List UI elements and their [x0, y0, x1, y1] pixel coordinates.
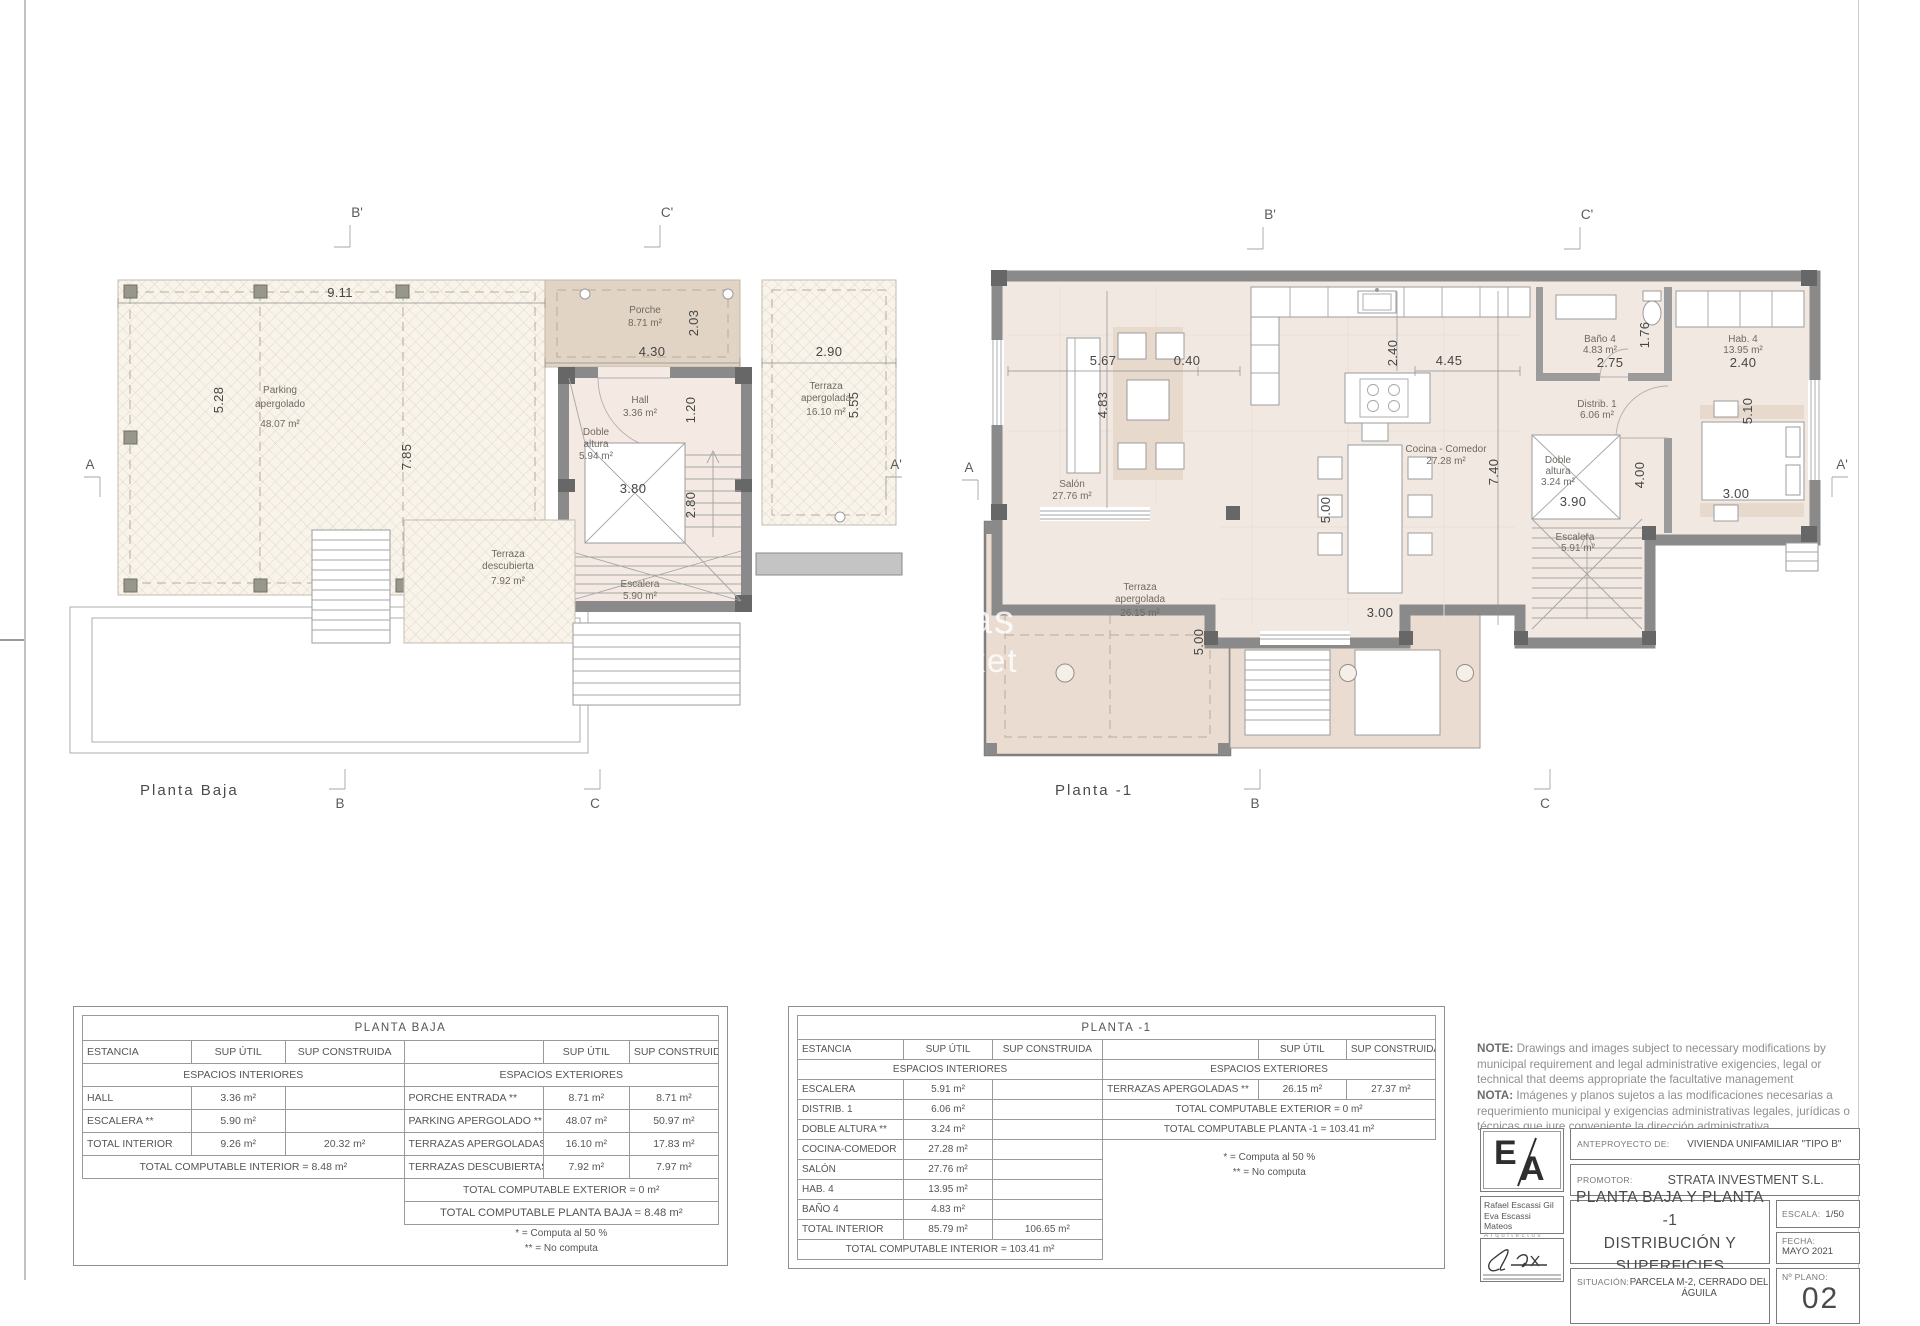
escala-box: ESCALA: 1/50 [1776, 1200, 1860, 1228]
total-exterior: TOTAL COMPUTABLE EXTERIOR = 0 m² [404, 1179, 718, 1202]
dim-label: 5.00 [1191, 629, 1206, 656]
legend-line2: ** = No computa [1107, 1165, 1431, 1180]
table-legend: * = Computa al 50 % ** = No computa [404, 1225, 718, 1258]
room-area-terraza-ap: 16.10 m² [806, 407, 846, 418]
table-row: COCINA-COMEDOR 27.28 m² * = Computa al 5… [798, 1140, 1436, 1160]
cell-util: 85.79 m² [904, 1220, 992, 1240]
fecha-value: MAYO 2021 [1782, 1246, 1859, 1257]
escala-value: 1/50 [1825, 1209, 1844, 1220]
dim-label: 3.90 [1560, 494, 1587, 509]
floorplan-planta-m1: 5.67 0.40 4.83 Salón 27.76 m² 2.40 4.45 … [960, 195, 1910, 817]
table-row: TOTAL COMPUTABLE INTERIOR = 8.48 m² TERR… [83, 1156, 719, 1179]
room-label-cocina: Cocina - Comedor [1405, 444, 1487, 455]
garden-stairs [312, 530, 390, 643]
dim-label: 7.85 [399, 444, 414, 471]
table-title: PLANTA BAJA [83, 1016, 719, 1041]
dim-label: 7.40 [1486, 459, 1501, 486]
table-row: DOBLE ALTURA ** 3.24 m² TOTAL COMPUTABLE… [798, 1120, 1436, 1140]
table-row: TOTAL COMPUTABLE PLANTA BAJA = 8.48 m² [83, 1202, 719, 1225]
island [1345, 373, 1430, 423]
room-label-parking: Parking [263, 385, 297, 396]
room-area-distrib: 6.06 m² [1580, 410, 1615, 421]
wing-steps [1786, 543, 1818, 571]
cell-cons [992, 1200, 1103, 1220]
cell-util: 5.91 m² [904, 1080, 992, 1100]
dim-label: 4.00 [1632, 462, 1647, 489]
dim-label: 5.67 [1090, 353, 1117, 368]
room-area-escalera-m1: 5.91 m² [1561, 543, 1596, 554]
cell-cons: 27.37 m² [1346, 1080, 1435, 1100]
section-header: ESPACIOS EXTERIORES [404, 1064, 718, 1087]
section-marker-a: A [85, 457, 94, 472]
signature-box [1480, 1238, 1564, 1282]
plan-title-baja: Planta Baja [140, 782, 239, 799]
situacion-label: SITUACIÓN: [1571, 1277, 1629, 1287]
col-header: ESTANCIA [798, 1040, 904, 1060]
total-exterior: TOTAL COMPUTABLE EXTERIOR = 0 m² [1103, 1100, 1436, 1120]
col-header: SUP CONSTRUIDA [1346, 1040, 1435, 1060]
dim-label: 3.00 [1367, 605, 1394, 620]
cell-name: PORCHE ENTRADA ** [404, 1087, 543, 1110]
section-marker-c-m1: C [1540, 796, 1550, 811]
col-header: SUP CONSTRUIDA [629, 1041, 718, 1064]
situacion-box: SITUACIÓN: PARCELA M-2, CERRADO DEL ÁGUI… [1570, 1268, 1770, 1324]
cell-util: 27.28 m² [904, 1140, 992, 1160]
section-marker-a2: A' [890, 457, 902, 472]
section-marker-b-m1: B [1250, 796, 1259, 811]
dim-label: 2.40 [1385, 340, 1400, 367]
col-header: SUP ÚTIL [191, 1041, 285, 1064]
room-area-parking: 48.07 m² [260, 419, 300, 430]
cell-name: BAÑO 4 [798, 1200, 904, 1220]
room-label-distrib: Distrib. 1 [1577, 399, 1617, 410]
table-row: HALL 3.36 m² PORCHE ENTRADA ** 8.71 m² 8… [83, 1087, 719, 1110]
note-en: NOTE: Drawings and images subject to nec… [1477, 1041, 1863, 1088]
dim-label: 2.75 [1597, 355, 1624, 370]
cell-cons [992, 1140, 1103, 1160]
nplano-box: Nº PLANO: 02 [1776, 1268, 1860, 1324]
cell-name: DOBLE ALTURA ** [798, 1120, 904, 1140]
cell-util: 8.71 m² [543, 1087, 629, 1110]
drawing-title-box: PLANTA BAJA Y PLANTA -1 DISTRIBUCIÓN Y S… [1570, 1200, 1770, 1264]
cell-name: COCINA-COMEDOR [798, 1140, 904, 1160]
room-label-doble: altura [583, 439, 608, 450]
room-label-parking: apergolado [255, 399, 305, 410]
dim-label: 2.90 [816, 344, 843, 359]
cell-name: SALÓN [798, 1160, 904, 1180]
legend-line1: * = Computa al 50 % [1107, 1150, 1431, 1165]
logo-inner-frame: E A [1483, 1131, 1561, 1189]
cell-name: TOTAL INTERIOR [83, 1133, 192, 1156]
nplano-value: 02 [1782, 1282, 1859, 1316]
cell-cons [992, 1120, 1103, 1140]
anteproyecto-box: ANTEPROYECTO DE: VIVIENDA UNIFAMILIAR "T… [1570, 1128, 1860, 1160]
cell-cons [992, 1160, 1103, 1180]
legend-line1: * = Computa al 50 % [408, 1226, 714, 1241]
dim-label: 2.03 [686, 310, 701, 337]
hall-door-opening [598, 367, 670, 378]
cell-util: 5.90 m² [191, 1110, 285, 1133]
cell-name: PARKING APERGOLADO ** [404, 1110, 543, 1133]
cell-cons [285, 1110, 404, 1133]
escala-label: ESCALA: [1782, 1209, 1820, 1219]
total-interior: TOTAL COMPUTABLE INTERIOR = 8.48 m² [83, 1156, 405, 1179]
cell-util: 27.76 m² [904, 1160, 992, 1180]
room-label-escalera: Escalera [621, 579, 660, 590]
cell-util: 26.15 m² [1258, 1080, 1346, 1100]
col-header-blank [404, 1041, 543, 1064]
legend-line2: ** = No computa [408, 1241, 714, 1256]
logo-slash-icon [1484, 1132, 1564, 1190]
table-row: * = Computa al 50 % ** = No computa [83, 1225, 719, 1258]
architect-name-1: Rafael Escassi Gil [1484, 1200, 1561, 1211]
room-label-terraza-ap: apergolada [801, 393, 851, 404]
plan-sheet: { "watermark": {"line1": "verseas", "lin… [0, 0, 1920, 1280]
dim-label: 4.83 [1095, 392, 1110, 419]
dim-label: 5.10 [1740, 398, 1755, 425]
room-label-hab: Hab. 4 [1728, 334, 1758, 345]
blank-cell [83, 1202, 405, 1225]
cell-util: 7.92 m² [543, 1156, 629, 1179]
col-header: ESTANCIA [83, 1041, 192, 1064]
cell-name: TERRAZAS APERGOLADAS ** [404, 1133, 543, 1156]
total-interior: TOTAL COMPUTABLE INTERIOR = 103.41 m² [798, 1240, 1103, 1260]
room-area-terraza: 26.15 m² [1120, 608, 1160, 619]
cell-cons: 20.32 m² [285, 1133, 404, 1156]
col-header-blank [1103, 1040, 1259, 1060]
cell-name: HAB. 4 [798, 1180, 904, 1200]
blank-cell [83, 1225, 405, 1258]
dim-label: 1.20 [683, 397, 698, 424]
room-label-doble-m1: altura [1545, 466, 1570, 477]
stair-hall-block [558, 367, 752, 612]
promotor-label: PROMOTOR: [1571, 1175, 1633, 1185]
blank-cell [83, 1179, 405, 1202]
sheet-fold-tick [0, 639, 24, 641]
cell-cons: 106.65 m² [992, 1220, 1103, 1240]
table-row: ESCALERA 5.91 m² TERRAZAS APERGOLADAS **… [798, 1080, 1436, 1100]
anteproyecto-value: VIVIENDA UNIFAMILIAR "TIPO B" [1670, 1139, 1859, 1150]
table-row: TOTAL COMPUTABLE EXTERIOR = 0 m² [83, 1179, 719, 1202]
cell-name: DISTRIB. 1 [798, 1100, 904, 1120]
room-label-hall: Hall [631, 395, 648, 406]
cell-cons [992, 1080, 1103, 1100]
room-area-hall: 3.36 m² [623, 408, 658, 419]
dim-label: 9.11 [327, 285, 353, 300]
cell-util: 3.36 m² [191, 1087, 285, 1110]
cell-name: ESCALERA ** [83, 1110, 192, 1133]
dim-label: 5.00 [1318, 497, 1333, 524]
dim-label: 4.30 [639, 344, 666, 359]
cell-cons: 17.83 m² [629, 1133, 718, 1156]
col-header: SUP CONSTRUIDA [285, 1041, 404, 1064]
toilet [1643, 301, 1661, 325]
room-label-terraza: Terraza [1123, 582, 1157, 593]
plan-title-m1: Planta -1 [1055, 782, 1133, 799]
cell-name: TOTAL INTERIOR [798, 1220, 904, 1240]
anteproyecto-label: ANTEPROYECTO DE: [1571, 1139, 1670, 1149]
dim-label: 5.28 [211, 387, 226, 414]
section-marker-c: C [590, 796, 600, 811]
cell-cons: 8.71 m² [629, 1087, 718, 1110]
room-label-terr-desc: Terraza [491, 549, 525, 560]
cell-cons: 7.97 m² [629, 1156, 718, 1179]
cell-util: 13.95 m² [904, 1180, 992, 1200]
note-es-label: NOTA: [1477, 1089, 1513, 1102]
total-planta: TOTAL COMPUTABLE PLANTA BAJA = 8.48 m² [404, 1202, 718, 1225]
section-marker-b2-m1: B' [1264, 207, 1276, 222]
room-area-cocina: 27.28 m² [1426, 456, 1466, 467]
col-header: SUP ÚTIL [904, 1040, 992, 1060]
nplano-label: Nº PLANO: [1782, 1272, 1859, 1282]
table-row: DISTRIB. 1 6.06 m² TOTAL COMPUTABLE EXTE… [798, 1100, 1436, 1120]
cell-cons [285, 1087, 404, 1110]
room-label-terraza: apergolada [1115, 594, 1165, 605]
dim-label: 0.40 [1174, 353, 1201, 368]
room-area-terr-desc: 7.92 m² [491, 576, 526, 587]
room-area-escalera: 5.90 m² [623, 591, 658, 602]
room-area-doble: 5.94 m² [579, 451, 614, 462]
room-label-salon: Salón [1059, 479, 1085, 490]
salon-furniture [1067, 327, 1184, 480]
room-label-doble-m1: Doble [1545, 455, 1572, 466]
room-area-porche: 8.71 m² [628, 318, 663, 329]
total-planta: TOTAL COMPUTABLE PLANTA -1 = 103.41 m² [1103, 1120, 1436, 1140]
room-area-salon: 27.76 m² [1052, 491, 1092, 502]
path-band [756, 553, 902, 575]
blank-cell [1103, 1240, 1436, 1260]
exterior-steps [573, 623, 740, 705]
table-row: TOTAL INTERIOR 9.26 m² 20.32 m² TERRAZAS… [83, 1133, 719, 1156]
cell-util: 4.83 m² [904, 1200, 992, 1220]
col-header: SUP ÚTIL [1258, 1040, 1346, 1060]
terraza-descubierta [404, 520, 575, 643]
dim-label: 2.40 [1730, 355, 1757, 370]
note-en-text: Drawings and images subject to necessary… [1477, 1042, 1826, 1086]
table-row: TOTAL COMPUTABLE INTERIOR = 103.41 m² [798, 1240, 1436, 1260]
dim-label: 3.80 [620, 481, 647, 496]
address-fineprint [1483, 1274, 1561, 1277]
cell-util: 6.06 m² [904, 1100, 992, 1120]
title-block: E A Rafael Escassi Gil Eva Escassi Mateo… [1480, 1126, 1862, 1326]
architects-box: Rafael Escassi Gil Eva Escassi Mateos Ar… [1480, 1196, 1564, 1234]
cell-name: ESCALERA [798, 1080, 904, 1100]
section-marker-c2: C' [661, 205, 673, 220]
col-header: SUP ÚTIL [543, 1041, 629, 1064]
dim-label: 3.00 [1723, 486, 1750, 501]
cell-cons: 50.97 m² [629, 1110, 718, 1133]
section-marker-a2-m1: A' [1836, 457, 1848, 472]
dim-label: 2.80 [683, 492, 698, 519]
cell-util: 9.26 m² [191, 1133, 285, 1156]
room-label-escalera-m1: Escalera [1556, 532, 1595, 543]
section-marker-b2: B' [351, 205, 363, 220]
room-label-terr-desc: descubierta [482, 561, 534, 572]
section-header: ESPACIOS EXTERIORES [1103, 1060, 1436, 1080]
dim-label: 1.76 [1637, 322, 1652, 349]
section-marker-b: B [335, 796, 344, 811]
cell-name: HALL [83, 1087, 192, 1110]
col-header: SUP CONSTRUIDA [992, 1040, 1103, 1060]
cell-util: 3.24 m² [904, 1120, 992, 1140]
section-header: ESPACIOS INTERIORES [798, 1060, 1103, 1080]
note-en-label: NOTE: [1477, 1042, 1513, 1055]
fecha-box: FECHA: MAYO 2021 [1776, 1232, 1860, 1264]
room-label-porche: Porche [629, 305, 661, 316]
fecha-label: FECHA: [1782, 1236, 1859, 1246]
room-label-doble: Doble [583, 427, 610, 438]
vanity [1556, 295, 1616, 319]
cell-cons [992, 1180, 1103, 1200]
cell-util: 16.10 m² [543, 1133, 629, 1156]
room-label-terraza-ap: Terraza [809, 381, 843, 392]
cell-util: 48.07 m² [543, 1110, 629, 1133]
areas-table-baja: PLANTA BAJA ESTANCIA SUP ÚTIL SUP CONSTR… [73, 1006, 728, 1266]
table-title: PLANTA -1 [798, 1016, 1436, 1040]
section-marker-c2-m1: C' [1581, 207, 1593, 222]
areas-table-m1: PLANTA -1 ESTANCIA SUP ÚTIL SUP CONSTRUI… [788, 1006, 1445, 1269]
table-row: ESCALERA ** 5.90 m² PARKING APERGOLADO *… [83, 1110, 719, 1133]
logo-box: E A [1480, 1128, 1564, 1192]
notes-block: NOTE: Drawings and images subject to nec… [1477, 1041, 1863, 1135]
dim-label: 4.45 [1436, 353, 1463, 368]
room-label-bano: Baño 4 [1584, 334, 1616, 345]
architect-name-2: Eva Escassi Mateos [1484, 1211, 1561, 1232]
drawing-title-line1: PLANTA BAJA Y PLANTA -1 [1571, 1186, 1769, 1233]
room-area-doble-m1: 3.24 m² [1541, 477, 1576, 488]
floorplan-planta-baja: 9.11 5.28 7.85 Parking apergolado 48.07 … [40, 195, 920, 813]
section-marker-a-m1: A [964, 460, 973, 475]
sheet-border-left [24, 0, 26, 1280]
situacion-value: PARCELA M-2, CERRADO DEL ÁGUILA [1629, 1277, 1769, 1299]
cell-name: TERRAZAS DESCUBIERTAS ** [404, 1156, 543, 1179]
section-header: ESPACIOS INTERIORES [83, 1064, 405, 1087]
table-legend: * = Computa al 50 % ** = No computa [1103, 1140, 1436, 1240]
cell-name: TERRAZAS APERGOLADAS ** [1103, 1080, 1259, 1100]
cell-cons [992, 1100, 1103, 1120]
